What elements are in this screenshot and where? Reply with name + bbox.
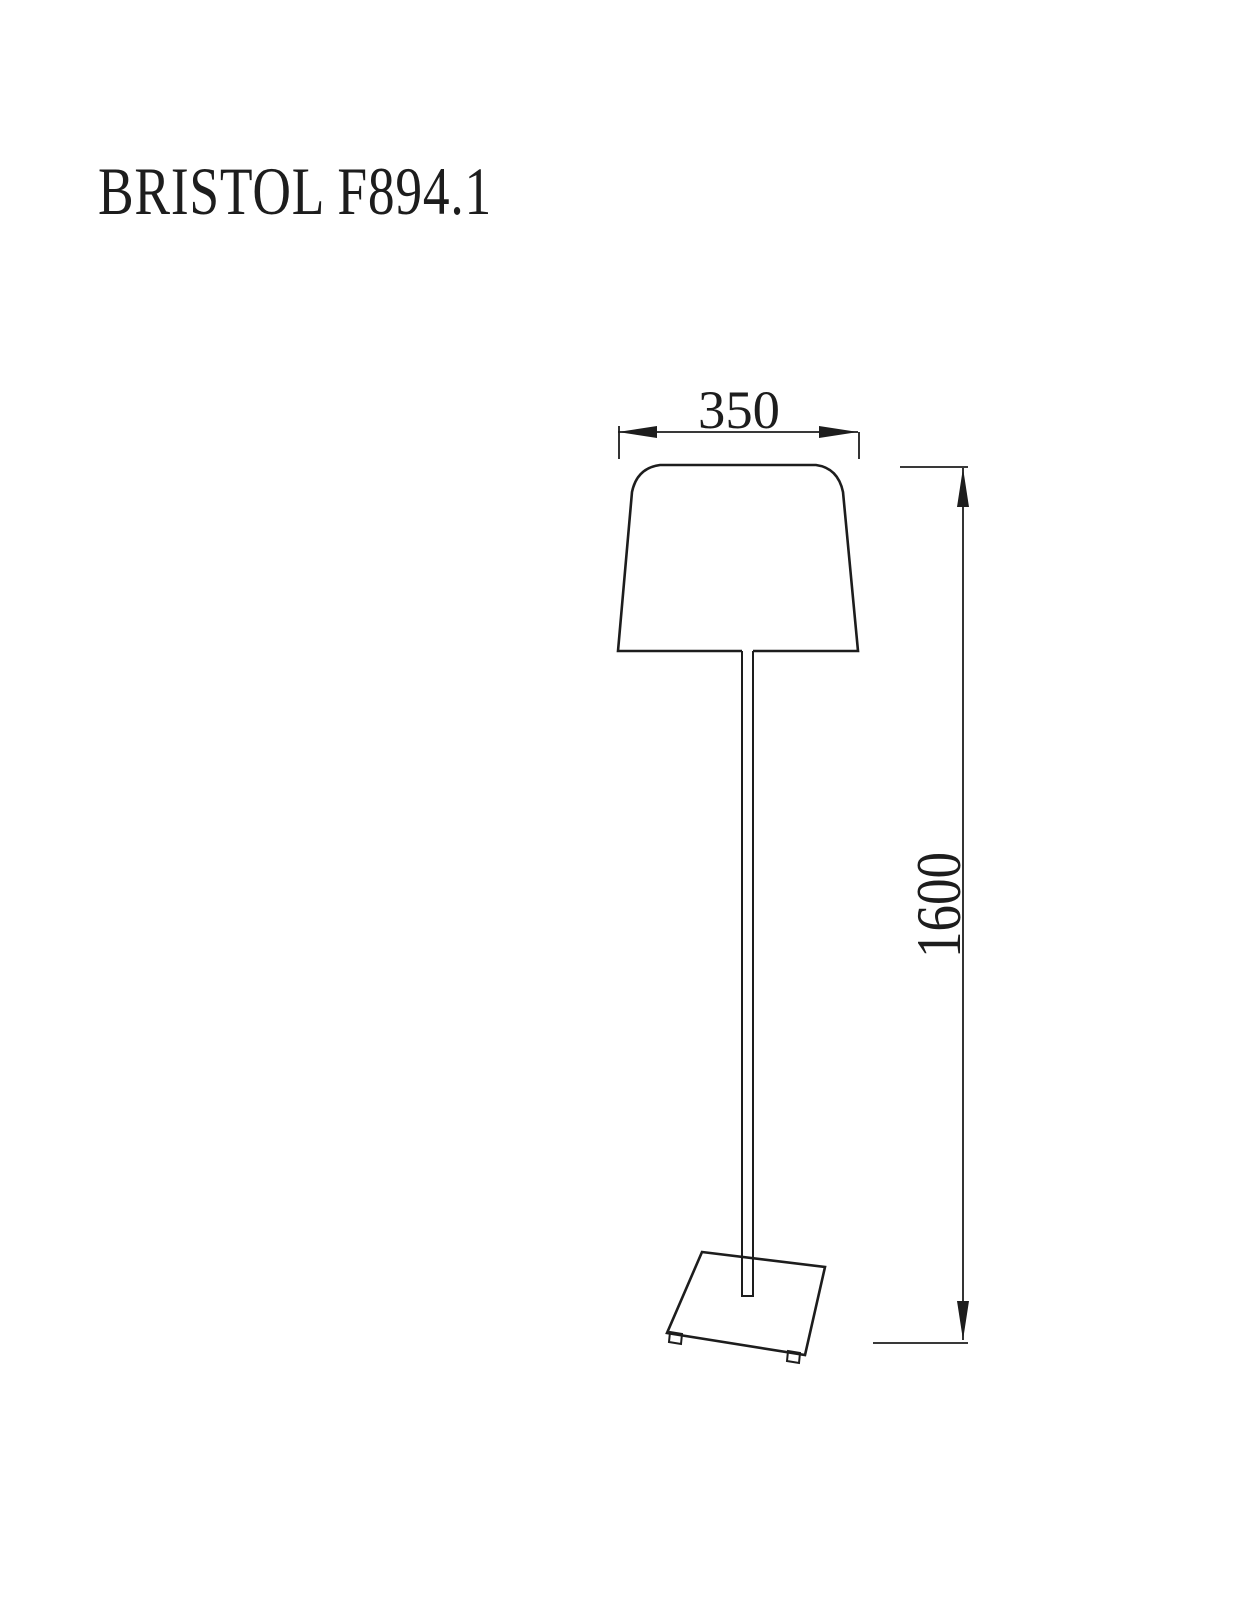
lamp-base bbox=[667, 1252, 825, 1363]
dimension-width-arrow-left bbox=[618, 426, 657, 438]
dimension-width-arrow-right bbox=[819, 426, 858, 438]
dimension-height: 1600 bbox=[873, 467, 974, 1343]
dimension-height-label: 1600 bbox=[903, 852, 974, 958]
lamp-dimension-drawing: BRISTOL F894.1 350 bbox=[0, 0, 1236, 1600]
lamp-pole-outline bbox=[742, 651, 753, 1296]
lamp-base-plate bbox=[667, 1252, 825, 1355]
dimension-height-arrow-bottom bbox=[957, 1301, 969, 1340]
lamp-pole bbox=[742, 651, 753, 1296]
drawing-page: BRISTOL F894.1 350 bbox=[0, 0, 1236, 1600]
drawing-title: BRISTOL F894.1 bbox=[98, 153, 492, 229]
dimension-width: 350 bbox=[618, 380, 859, 459]
dimension-width-label: 350 bbox=[698, 380, 780, 440]
lamp-shade bbox=[618, 465, 858, 651]
lamp-shade-outline bbox=[618, 465, 858, 651]
dimension-height-arrow-top bbox=[957, 468, 969, 507]
